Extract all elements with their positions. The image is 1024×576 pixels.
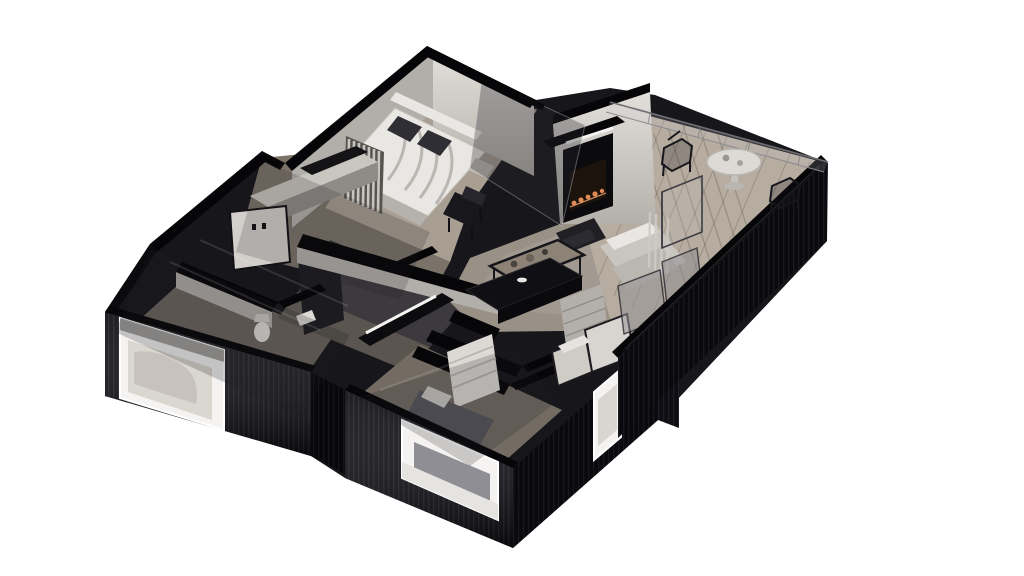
dish — [517, 278, 527, 283]
floorplan-svg — [0, 0, 1024, 576]
cup — [526, 254, 534, 262]
bowl — [511, 261, 518, 268]
floorplan-render — [0, 0, 1024, 576]
cup — [542, 249, 548, 255]
